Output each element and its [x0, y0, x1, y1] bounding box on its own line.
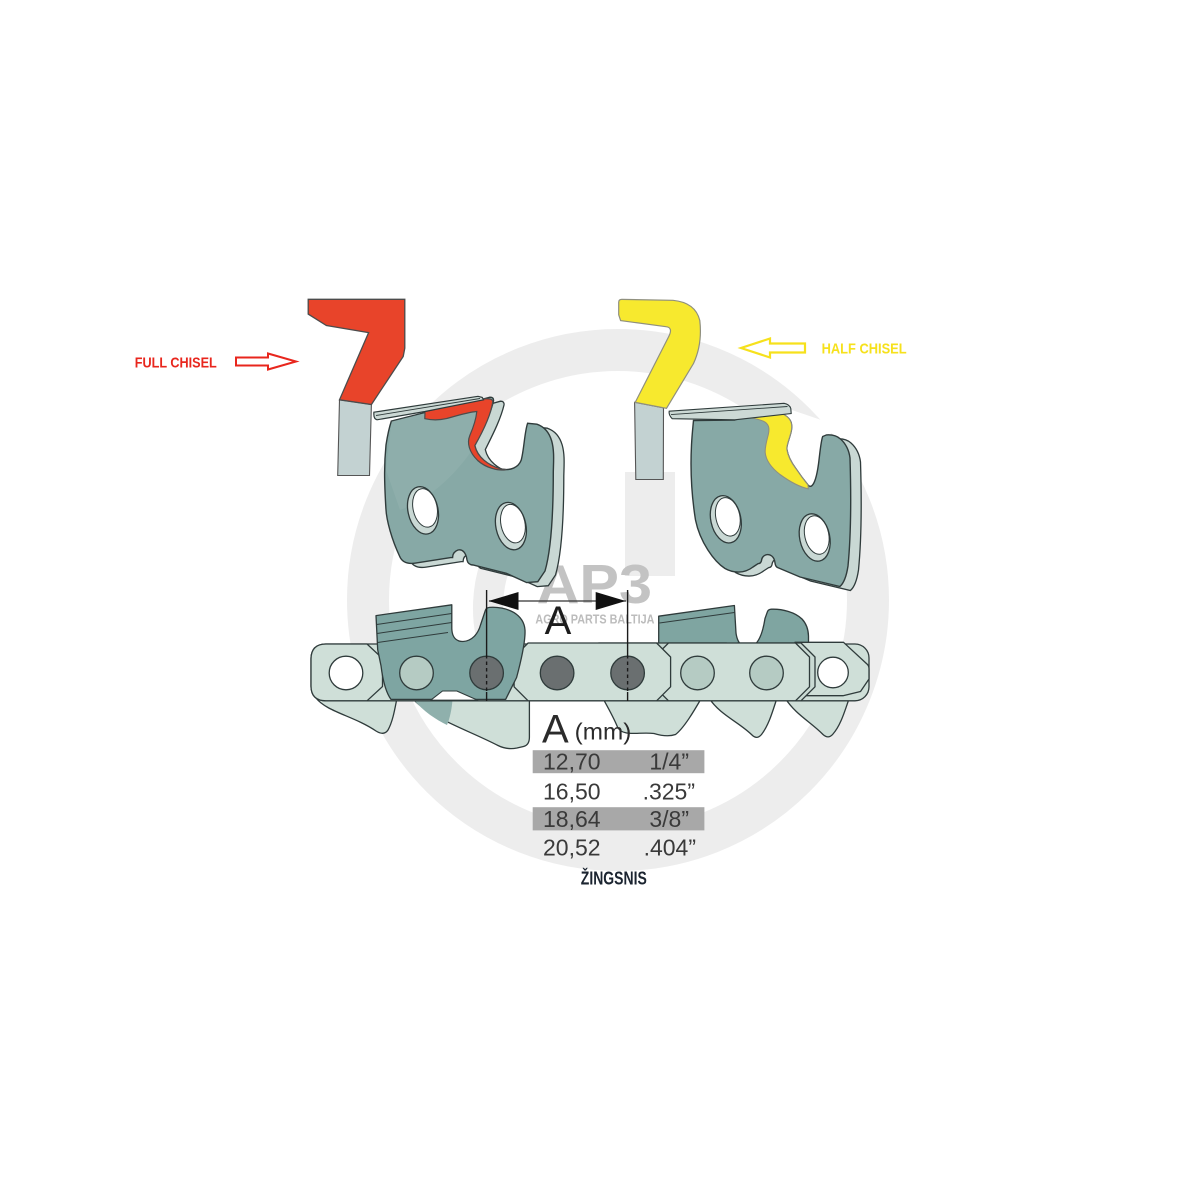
svg-text:.404”: .404” [644, 835, 696, 861]
svg-text:HALF CHISEL: HALF CHISEL [822, 341, 907, 358]
svg-text:(mm): (mm) [575, 719, 632, 745]
svg-text:.325”: .325” [643, 779, 695, 805]
svg-text:ŽINGSNIS: ŽINGSNIS [581, 868, 647, 889]
svg-text:18,64: 18,64 [543, 806, 601, 832]
svg-text:3/8”: 3/8” [649, 806, 689, 832]
svg-text:A: A [545, 599, 572, 643]
svg-text:FULL CHISEL: FULL CHISEL [135, 355, 217, 372]
svg-text:12,70: 12,70 [543, 749, 601, 775]
svg-text:A: A [542, 708, 569, 752]
svg-text:16,50: 16,50 [543, 779, 601, 805]
svg-text:1/4”: 1/4” [649, 749, 689, 775]
svg-text:20,52: 20,52 [543, 835, 601, 861]
